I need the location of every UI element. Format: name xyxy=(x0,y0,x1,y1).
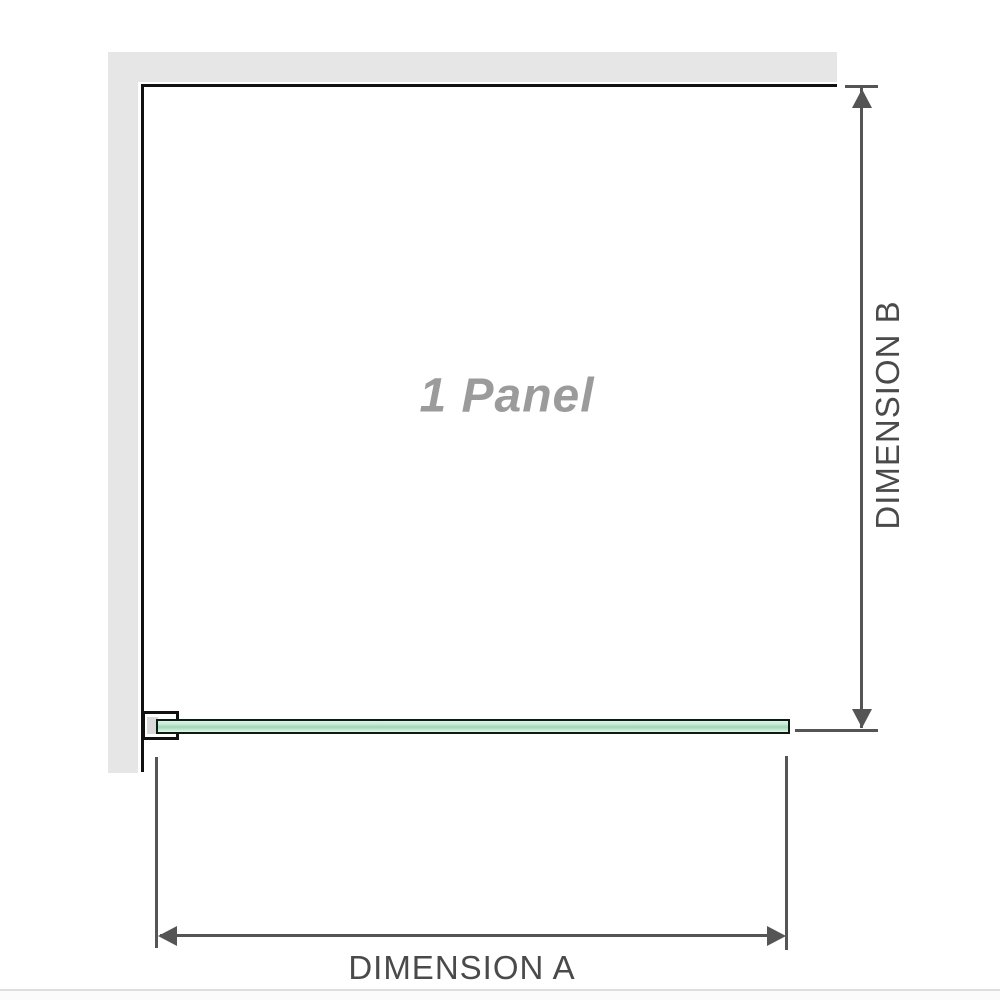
dimension-a-label: DIMENSION A xyxy=(348,949,575,987)
arrow-up-icon xyxy=(852,89,872,108)
dimension-a-line xyxy=(160,934,782,937)
panel-outline-top xyxy=(141,84,837,87)
panel-dimension-diagram: 1 Panel DIMENSION B DIMENSION A xyxy=(0,0,1000,1000)
dimension-a-extension-left xyxy=(155,757,158,948)
dimension-b-label: DIMENSION B xyxy=(869,300,907,529)
arrow-right-icon xyxy=(767,926,786,946)
wall-top xyxy=(108,52,837,82)
glass-panel xyxy=(156,719,790,734)
dimension-b-line xyxy=(860,88,863,728)
panel-label: 1 Panel xyxy=(419,369,594,424)
panel-outline-left xyxy=(141,84,144,772)
arrow-left-icon xyxy=(158,926,177,946)
wall-left xyxy=(108,52,138,773)
dimension-b-top-tick xyxy=(845,85,878,88)
arrow-down-icon xyxy=(852,709,872,728)
dimension-b-bottom-tick xyxy=(795,729,878,732)
dimension-a-extension-right xyxy=(785,756,788,950)
page-bottom-strip xyxy=(0,991,1000,1000)
